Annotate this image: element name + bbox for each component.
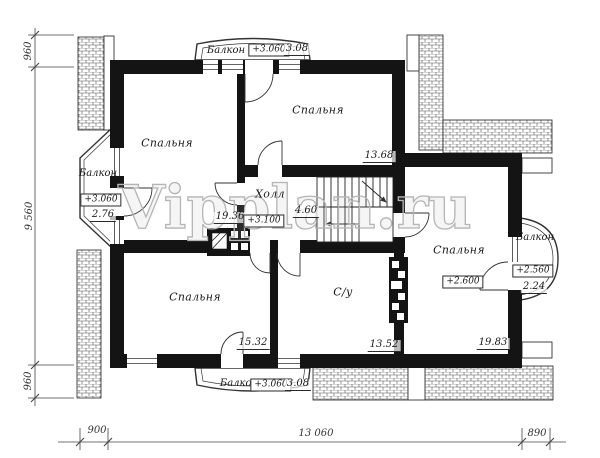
room-area-bedroom-bottom-left: 15.32	[237, 338, 270, 350]
brick-hatch-top-right-vertical	[419, 35, 443, 150]
door-bathroom	[277, 253, 300, 276]
room-area-bedroom-right: 19.83	[477, 338, 510, 350]
wall-bottom	[110, 354, 522, 368]
ledge-top-center	[407, 35, 419, 71]
room-area-bedroom-top-center: 13.68	[363, 151, 396, 163]
balcony-area-bottom: 3.08	[285, 379, 311, 391]
balcony-label-left: Балкон	[79, 169, 117, 179]
elevation-mark-balcony-left: +3.060	[80, 194, 121, 207]
balcony-area-left: 2.76	[90, 210, 116, 222]
door-bedroom-bottom-left	[250, 253, 270, 273]
brick-hatch-top-left	[78, 37, 104, 130]
dimension-left-top: 960	[24, 41, 34, 60]
room-area-bedroom-top-left: 19.36	[214, 212, 247, 224]
brick-hatch-bottom-left	[77, 250, 101, 398]
wall-right-part-top	[392, 153, 522, 167]
room-label-bathroom: С/у	[333, 287, 352, 298]
balcony-area-top: 3.08	[284, 44, 310, 56]
balcony-outline-left	[80, 128, 112, 248]
dimension-bottom-center: 13 060	[299, 429, 334, 439]
door-top-balcony	[245, 74, 273, 102]
elevation-mark-bedroom-right: +2.600	[442, 276, 483, 289]
door-right-balcony	[480, 262, 508, 290]
balcony-label-right: Балкон	[516, 233, 554, 243]
stair-area-hall: 4.60	[293, 206, 319, 218]
elevation-mark-hall: +3.100	[243, 215, 284, 228]
dimension-left-middle: 9 560	[25, 202, 35, 231]
room-label-hall: Холл	[255, 189, 285, 200]
floor-plan-page: Vipplan.ru Спальня 19.36 Спальня 13.68 Х…	[0, 0, 600, 458]
room-area-bathroom: 13.52	[368, 340, 401, 352]
ledge-right-lower	[522, 342, 552, 358]
door-bedroom-top-center	[258, 141, 282, 165]
elevation-mark-balcony-right: +2.560	[512, 265, 553, 278]
ledge-bottom-gap	[408, 366, 425, 400]
room-label-bedroom-bottom-left: Спальня	[169, 292, 221, 303]
room-label-bedroom-right: Спальня	[433, 245, 485, 256]
brick-hatch-bottom-right	[425, 366, 553, 400]
balcony-area-right: 2.24	[521, 282, 547, 294]
dimension-bottom-right: 890	[527, 429, 546, 439]
balcony-label-top: Балкон	[207, 46, 245, 56]
brick-hatch-top-right-horizontal	[443, 120, 552, 153]
room-label-bedroom-top-center: Спальня	[292, 105, 344, 116]
brick-hatch-bottom-center	[313, 366, 408, 400]
dimension-left-bottom: 960	[24, 371, 34, 390]
dimension-bottom-left: 900	[87, 426, 106, 436]
vent-block-bathroom	[389, 257, 408, 323]
ledge-right-upper	[522, 158, 552, 173]
room-label-bedroom-top-left: Спальня	[141, 138, 193, 149]
wall-bedroom-bathroom	[270, 240, 278, 368]
